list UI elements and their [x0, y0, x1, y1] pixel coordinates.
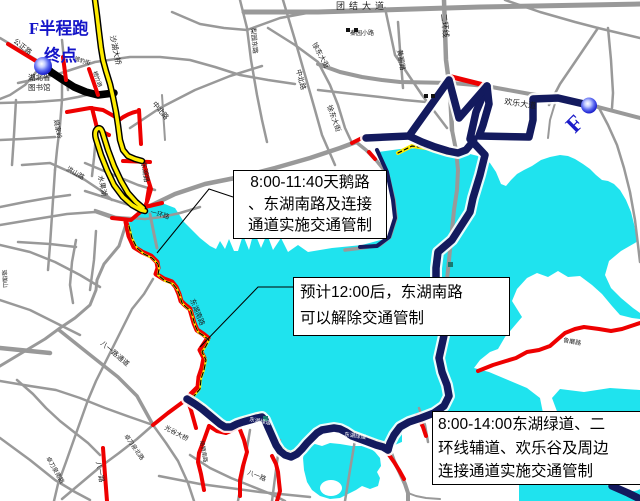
svg-text:欢乐大道: 欢乐大道: [504, 96, 537, 110]
svg-text:卓刀泉北路: 卓刀泉北路: [122, 433, 146, 462]
svg-text:梨园东路: 梨园东路: [249, 27, 260, 54]
svg-text:公正路: 公正路: [12, 36, 34, 56]
svg-text:沙湖大桥: 沙湖大桥: [108, 34, 124, 66]
svg-text:珞珈山: 珞珈山: [0, 269, 10, 288]
svg-text:姚家岭: 姚家岭: [52, 119, 64, 140]
svg-text:团结大道: 团结大道: [336, 0, 388, 11]
svg-text:中北路: 中北路: [150, 100, 170, 122]
svg-text:珞狮南路: 珞狮南路: [198, 440, 210, 464]
svg-text:中北路: 中北路: [294, 68, 308, 91]
svg-text:一环路: 一环路: [149, 207, 171, 221]
svg-text:栖竹路: 栖竹路: [91, 70, 104, 89]
svg-text:卓刀泉南路: 卓刀泉南路: [44, 455, 66, 485]
svg-text:东湖路: 东湖路: [139, 161, 152, 183]
svg-text:湖北省: 湖北省: [28, 72, 51, 82]
svg-text:东湖绿道: 东湖绿道: [249, 415, 273, 427]
svg-text:徐东大街: 徐东大街: [325, 104, 343, 133]
svg-text:光谷大桥: 光谷大桥: [163, 423, 191, 443]
svg-text:图书馆: 图书馆: [28, 82, 51, 92]
svg-text:二环线: 二环线: [439, 13, 451, 38]
svg-text:水果湖: 水果湖: [96, 175, 109, 197]
svg-text:秦园小路: 秦园小路: [350, 29, 374, 37]
svg-text:东湖绿道: 东湖绿道: [344, 430, 367, 441]
svg-text:鲁磨路: 鲁磨路: [563, 336, 582, 347]
svg-text:洪山路: 洪山路: [65, 164, 87, 182]
svg-text:八一路: 八一路: [94, 461, 107, 483]
svg-text:徐东大街: 徐东大街: [310, 41, 331, 70]
svg-text:黄鹂路: 黄鹂路: [395, 49, 408, 71]
svg-text:八一路: 八一路: [246, 468, 268, 484]
svg-text:东湖南路: 东湖南路: [188, 297, 207, 326]
svg-text:八一路通道: 八一路通道: [99, 339, 132, 368]
